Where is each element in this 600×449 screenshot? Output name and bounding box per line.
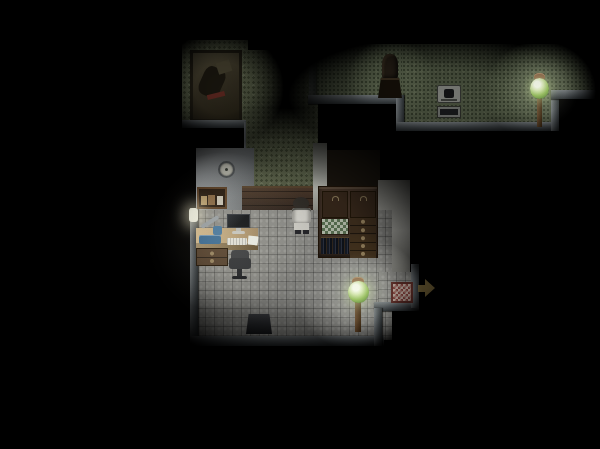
- chair-post: [237, 269, 242, 276]
- cabinet-hutch: [318, 186, 378, 258]
- books-row: [321, 237, 349, 254]
- keyboard: [227, 238, 247, 245]
- cabinet-drawers: [350, 218, 376, 235]
- monitor: [227, 214, 250, 234]
- chair-seat: [229, 258, 251, 269]
- stove-door: [444, 89, 454, 98]
- character[interactable]: [290, 195, 314, 239]
- door-handle: [360, 196, 367, 201]
- room-wall-edge-step: [374, 308, 382, 346]
- annex-wall-edge-bottom: [182, 120, 252, 128]
- cabinet-drawers: [350, 235, 376, 258]
- statue-pedestal: [378, 78, 402, 98]
- stove: [436, 83, 462, 121]
- dark-wall-above-cabinet: [327, 150, 380, 188]
- shelf-item: [217, 196, 223, 205]
- painting: [190, 50, 242, 122]
- painting-canvas: [193, 53, 239, 119]
- character-shoe: [303, 230, 309, 234]
- statue: [376, 52, 404, 98]
- stool: [246, 314, 272, 334]
- shelf-item: [208, 195, 215, 205]
- instrument-base: [199, 235, 221, 244]
- doormat[interactable]: [391, 282, 413, 303]
- stove-bench-slot: [440, 109, 458, 115]
- cabinet-door: [350, 191, 376, 218]
- under-desk-drawers: [196, 248, 228, 266]
- hallway-wall-edge: [396, 122, 559, 131]
- instrument-cup: [213, 226, 222, 235]
- lamp-globe: [348, 281, 369, 303]
- monitor-base: [232, 231, 245, 234]
- stove-vent: [441, 99, 457, 101]
- room-wall-edge-bottom: [190, 336, 384, 346]
- room-wallpaper: [254, 148, 318, 188]
- monitor-screen: [227, 214, 250, 228]
- stove-bench: [437, 106, 461, 118]
- lamp-post: [537, 98, 542, 127]
- character-body: [292, 208, 311, 223]
- lamp-globe: [530, 78, 549, 99]
- game-viewport[interactable]: [0, 0, 600, 449]
- character-legs: [294, 223, 309, 230]
- exit-arrow-icon[interactable]: [418, 279, 436, 297]
- clock-center: [225, 168, 228, 171]
- exit-arrow-head: [425, 279, 435, 297]
- wall-shelf: [197, 187, 227, 209]
- paper: [248, 236, 259, 246]
- statue-bust: [382, 54, 398, 80]
- stove-top: [437, 85, 461, 103]
- shelf-item: [201, 196, 207, 205]
- chair-base: [232, 276, 247, 279]
- office-chair: [227, 250, 253, 280]
- door-handle: [332, 196, 339, 201]
- hallway-wall-edge: [551, 90, 600, 99]
- character-shoe: [295, 230, 301, 234]
- bottle-shelf: [321, 218, 349, 235]
- hallway-wall-edge: [309, 46, 316, 102]
- lamp-post: [355, 301, 361, 332]
- painting-highlight: [215, 59, 232, 75]
- wall-clock: [218, 161, 235, 178]
- cabinet-door: [322, 191, 348, 218]
- desk-light: [189, 208, 198, 222]
